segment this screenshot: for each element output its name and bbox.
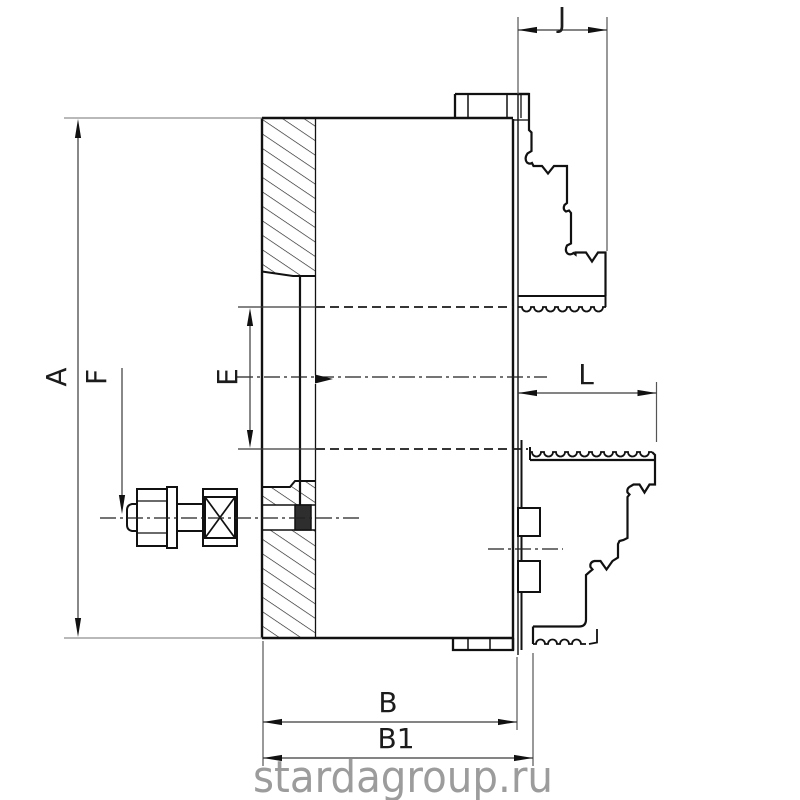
mounting-lug-bottom xyxy=(453,638,513,650)
back-plate-hatch-top xyxy=(262,118,315,276)
dim-label-e: E xyxy=(211,368,244,386)
top-jaw-outline xyxy=(518,94,606,296)
top-jaw xyxy=(518,94,606,312)
dim-label-f: F xyxy=(80,369,113,385)
dim-label-j: J xyxy=(556,1,566,34)
hidden-lines xyxy=(316,307,528,449)
back-plate xyxy=(262,118,513,638)
dim-label-l: L xyxy=(578,358,594,391)
dimension-l xyxy=(518,382,657,442)
dim-label-b: B xyxy=(378,686,397,719)
dimension-e xyxy=(238,307,316,449)
watermark-text: stardagroup.ru xyxy=(253,752,553,800)
back-plate-hatch-lower xyxy=(262,530,315,638)
dim-label-a: A xyxy=(40,367,73,386)
dim-label-b1: B1 xyxy=(377,722,414,755)
centerline-jog-arrow xyxy=(315,375,333,384)
dimension-f xyxy=(119,368,125,514)
back-plate-hatch-lower-upper xyxy=(262,481,315,505)
chuck-cross-section-drawing: A F E J L B B1 stardagroup.ru xyxy=(0,0,800,800)
technical-drawing-page: A F E J L B B1 stardagroup.ru xyxy=(0,0,800,800)
top-jaw-serration xyxy=(519,307,607,312)
bottom-jaw-outline xyxy=(533,452,655,627)
bottom-jaw xyxy=(530,447,655,644)
bottom-jaw-serration xyxy=(530,452,652,457)
bottom-jaw-base-serration xyxy=(533,640,586,645)
